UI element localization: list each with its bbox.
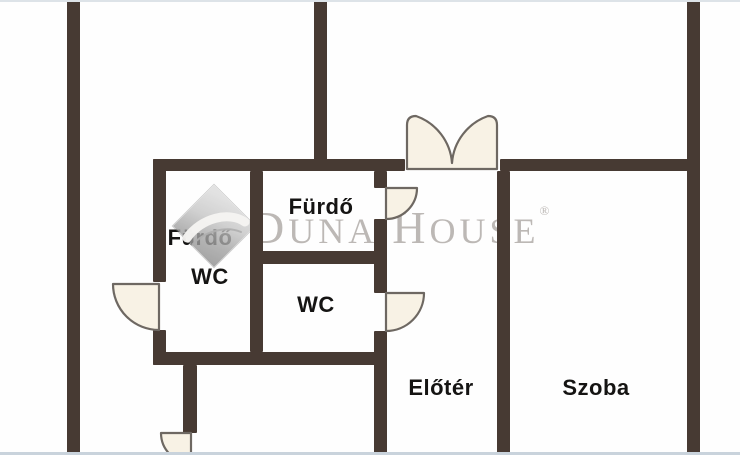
door-arc-wc-hall [386, 293, 424, 331]
double-door-top [407, 116, 497, 169]
door-arc-wc-left [113, 284, 159, 330]
floorplan-image: DUNAHOUSE® Fürdő WC Fürdő WC Előtér Szob… [0, 0, 740, 455]
doors-layer [0, 0, 740, 455]
door-arc-bathroom-hall [386, 188, 417, 219]
image-top-border [0, 0, 740, 2]
